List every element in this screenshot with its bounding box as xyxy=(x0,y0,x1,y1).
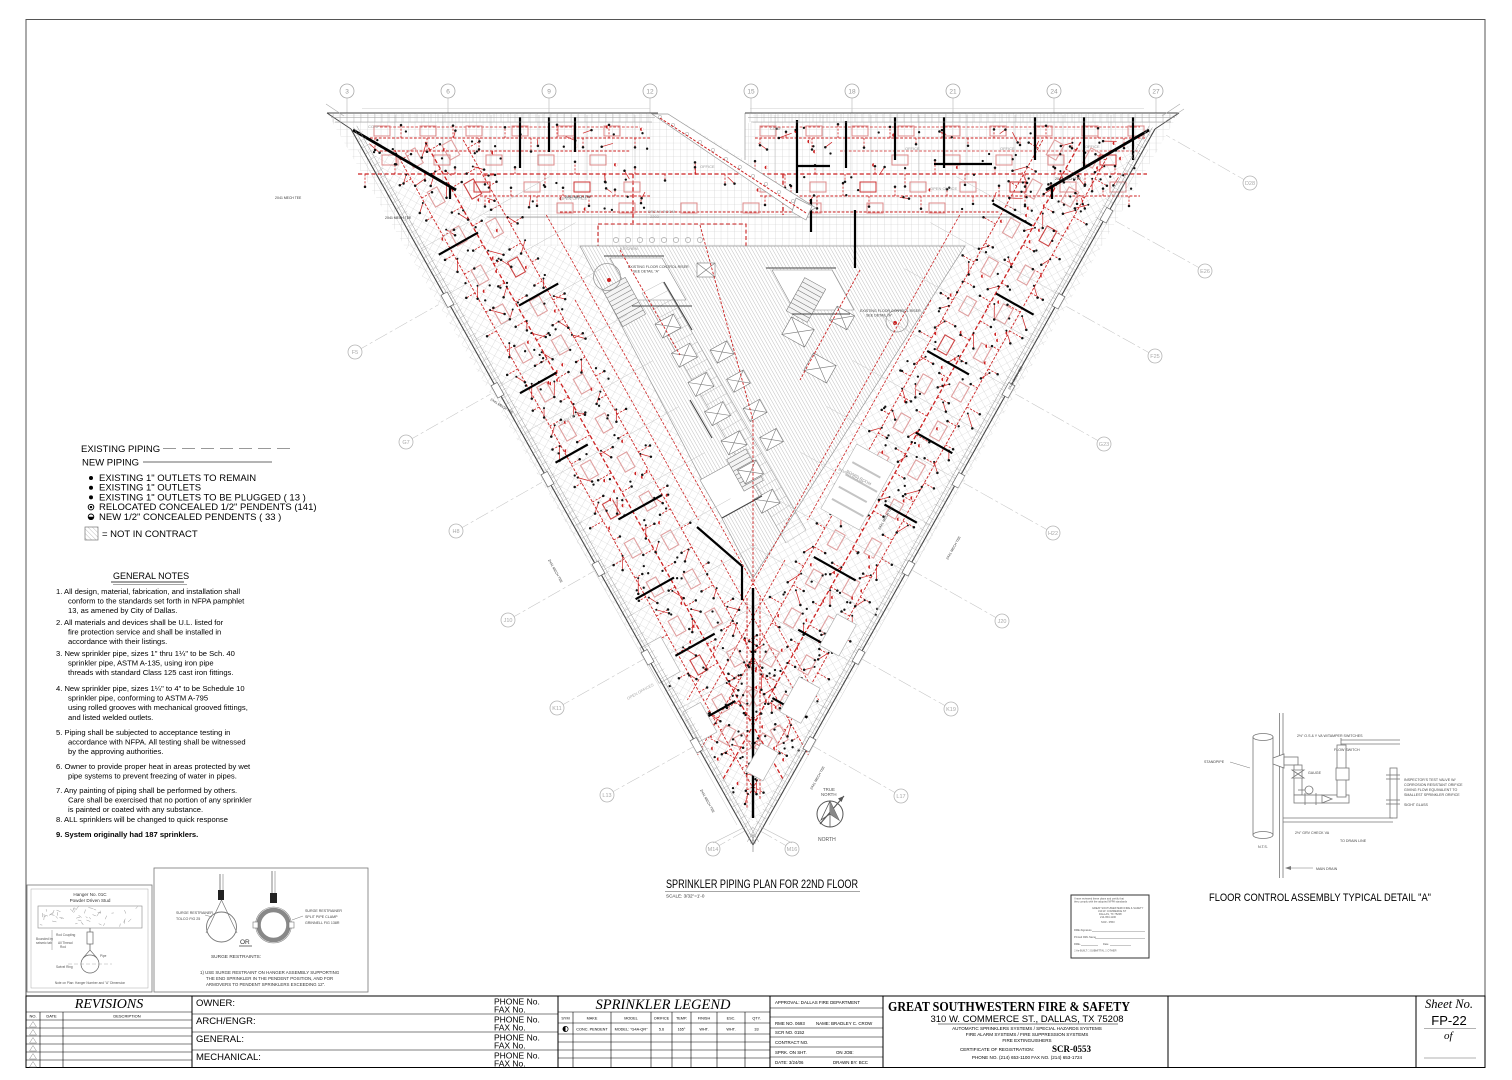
svg-text:SPRINKLER LEGEND: SPRINKLER LEGEND xyxy=(596,997,731,1013)
svg-text:they comply with the adopted N: they comply with the adopted NFPA standa… xyxy=(1074,900,1128,904)
svg-text:310 W. COMMERCE ST., DALLAS, T: 310 W. COMMERCE ST., DALLAS, TX 75208 xyxy=(930,1014,1123,1025)
svg-text:MAIN DRAIN: MAIN DRAIN xyxy=(1316,867,1338,871)
svg-text:Date: Date xyxy=(1103,942,1109,946)
svg-text:1) USE SURGE RESTRAINT ON HANG: 1) USE SURGE RESTRAINT ON HANGER ASSEMBL… xyxy=(200,970,340,975)
svg-text:EXISTING PIPING: EXISTING PIPING xyxy=(81,444,160,455)
svg-text:2. All materials and devices: 2. All materials and devices shall be U.… xyxy=(56,618,224,627)
svg-text:INSPECTOR'S TEST VALVE W/: INSPECTOR'S TEST VALVE W/ xyxy=(1404,778,1455,782)
svg-text:SEE DETAIL "A": SEE DETAIL "A" xyxy=(866,314,893,318)
svg-text:FAX No.: FAX No. xyxy=(494,1005,526,1015)
svg-text:using rolled grooves with mech: using rolled grooves with mechanical gro… xyxy=(68,703,248,712)
svg-text:FLOOR CONTROL ASSEMBLY TYPICAL: FLOOR CONTROL ASSEMBLY TYPICAL DETAIL "A… xyxy=(1209,892,1431,904)
svg-text:SCALE: 3/32"=1'-0: SCALE: 3/32"=1'-0 xyxy=(666,894,705,899)
svg-text:Note on Plan: Hanger Number an: Note on Plan: Hanger Number and "A" Dime… xyxy=(55,981,126,985)
svg-text:Rod Coupling: Rod Coupling xyxy=(56,933,76,937)
svg-text:2203: 2203 xyxy=(650,214,660,219)
svg-text:18: 18 xyxy=(848,88,856,95)
svg-text:ARMOVERS TO PENDENT SPRINKLERS: ARMOVERS TO PENDENT SPRINKLERS EXCEEDING… xyxy=(206,982,325,987)
svg-text:TEMP.: TEMP. xyxy=(676,1017,687,1021)
svg-text:8. ALL sprinklers will be cha: 8. ALL sprinklers will be changed to qui… xyxy=(56,815,228,824)
svg-text:MECHANICAL:: MECHANICAL: xyxy=(196,1052,261,1063)
svg-text:H22: H22 xyxy=(1048,531,1058,537)
svg-text:EXISTING FLOOR CONTROL RISER: EXISTING FLOOR CONTROL RISER xyxy=(628,265,689,269)
svg-text:FAX No.: FAX No. xyxy=(494,1023,526,1033)
svg-text:GAUGE: GAUGE xyxy=(1308,771,1322,775)
svg-text:2½" O.S & Y VA W/TAMPER SWITCH: 2½" O.S & Y VA W/TAMPER SWITCHES xyxy=(1297,734,1363,738)
svg-text:WHT.: WHT. xyxy=(699,1028,708,1032)
svg-text:FIRE ALARM SYSTEMS / FIRE SUPP: FIRE ALARM SYSTEMS / FIRE SUPPRESSION SY… xyxy=(966,1032,1089,1037)
svg-text:OR: OR xyxy=(240,939,250,946)
svg-text:SPRK. ON SHT.: SPRK. ON SHT. xyxy=(775,1050,807,1055)
svg-text:ORIFICE: ORIFICE xyxy=(654,1017,670,1021)
svg-text:SCR-0553: SCR-0553 xyxy=(1052,1044,1092,1054)
svg-text:DATE: 3/24/06: DATE: 3/24/06 xyxy=(775,1060,804,1065)
svg-text:OFFICE: OFFICE xyxy=(905,146,920,151)
svg-text:3. New sprinkler pipe, sizes: 3. New sprinkler pipe, sizes 1" thru 1¼"… xyxy=(56,649,235,658)
svg-text:GREAT SOUTHWESTERN FIRE & SAFE: GREAT SOUTHWESTERN FIRE & SAFETY xyxy=(888,999,1130,1014)
svg-text:SMALLEST SPRINKLER ORIFICE: SMALLEST SPRINKLER ORIFICE xyxy=(1404,793,1460,797)
svg-text:N.T.S.: N.T.S. xyxy=(1258,845,1268,849)
svg-text:NAME: BRADLEY C. CROW: NAME: BRADLEY C. CROW xyxy=(816,1021,873,1026)
svg-text:SPLIT PIPE CLAMP: SPLIT PIPE CLAMP xyxy=(305,915,338,919)
svg-text:K19: K19 xyxy=(946,707,956,713)
svg-text:H8: H8 xyxy=(452,529,459,535)
svg-text:G7: G7 xyxy=(402,440,409,446)
svg-text:FLOW SWITCH: FLOW SWITCH xyxy=(1334,748,1360,752)
svg-text:pipe systems to prevent freezi: pipe systems to prevent freezing of wate… xyxy=(68,772,237,781)
svg-text:accordance with NFPA. All tes: accordance with NFPA. All testing shall … xyxy=(68,738,246,747)
svg-text:J20: J20 xyxy=(998,619,1007,625)
svg-text:MAKE: MAKE xyxy=(587,1017,598,1021)
svg-text:GRINNELL FIG 138R: GRINNELL FIG 138R xyxy=(305,921,340,925)
svg-text:OFFICE: OFFICE xyxy=(1085,144,1100,149)
svg-text:DRAWN BY: BCC: DRAWN BY: BCC xyxy=(833,1060,868,1065)
svg-text:APPROVAL: DALLAS FIRE DEPARTME: APPROVAL: DALLAS FIRE DEPARTMENT xyxy=(775,1000,860,1005)
svg-text:ON JOB:: ON JOB: xyxy=(836,1050,854,1055)
svg-text:Sheet No.: Sheet No. xyxy=(1425,997,1473,1011)
svg-text:ESC.: ESC. xyxy=(727,1017,736,1021)
svg-text:M14: M14 xyxy=(708,847,719,853)
svg-text:Care shall be exercised that n: Care shall be exercised that no portion … xyxy=(68,796,252,805)
svg-text:L17: L17 xyxy=(896,794,905,800)
svg-text:GENERAL NOTES: GENERAL NOTES xyxy=(113,571,189,581)
svg-text:L13: L13 xyxy=(602,793,611,799)
svg-text:SYM: SYM xyxy=(561,1017,569,1021)
svg-text:STANDPIPE: STANDPIPE xyxy=(1204,760,1225,764)
svg-text:QTY.: QTY. xyxy=(752,1017,760,1021)
svg-text:2X41 MECH TEE: 2X41 MECH TEE xyxy=(275,196,302,200)
svg-text:is painted or coated with any: is painted or coated with any substance. xyxy=(68,805,203,814)
svg-text:Rod: Rod xyxy=(60,945,66,949)
svg-text:fire protection service and sh: fire protection service and shall be ins… xyxy=(68,628,221,637)
svg-text:2½" GRV CHECK VA: 2½" GRV CHECK VA xyxy=(1295,831,1330,835)
svg-text:2X41 MECH TEE: 2X41 MECH TEE xyxy=(1055,177,1082,181)
svg-text:Powder Driven Stud: Powder Driven Stud xyxy=(70,898,111,903)
svg-text:21: 21 xyxy=(949,88,957,95)
svg-text:CERTIFICATE OF REGISTRATION:: CERTIFICATE OF REGISTRATION: xyxy=(960,1047,1034,1052)
svg-text:TO DRAIN LINE: TO DRAIN LINE xyxy=(1340,839,1367,843)
svg-text:THE END SPRINKLER IN THE PENDE: THE END SPRINKLER IN THE PENDENT POSITIO… xyxy=(206,976,333,981)
svg-text:sprinkler pipe, conforming to: sprinkler pipe, conforming to ASTM A-795 xyxy=(68,694,208,703)
svg-text:27: 27 xyxy=(1152,88,1160,95)
svg-text:F5: F5 xyxy=(352,350,358,356)
svg-text:by the approving authorities.: by the approving authorities. xyxy=(68,747,163,756)
svg-text:1. All design, material, fabr: 1. All design, material, fabrication, an… xyxy=(56,587,240,596)
svg-text:FP-22: FP-22 xyxy=(1431,1013,1466,1028)
svg-text:K11: K11 xyxy=(552,706,561,712)
svg-text:SIGHT GLASS: SIGHT GLASS xyxy=(1404,803,1429,807)
svg-text:13, as amened by City of Dalla: 13, as amened by City of Dallas. xyxy=(68,606,177,615)
svg-text:threads with standard Class 12: threads with standard Class 125 cast iro… xyxy=(68,668,233,677)
svg-text:3: 3 xyxy=(345,88,349,95)
svg-text:15: 15 xyxy=(747,88,755,95)
svg-text:9: 9 xyxy=(547,88,551,95)
svg-text:PHONE NO. (214) 653-1100 FA: PHONE NO. (214) 653-1100 FAX NO. (214) 6… xyxy=(972,1055,1083,1060)
svg-text:7. Any painting of piping sha: 7. Any painting of piping shall be perfo… xyxy=(56,786,237,795)
svg-text:GENERAL:: GENERAL: xyxy=(196,1034,244,1045)
svg-text:Hanger No. 01C: Hanger No. 01C xyxy=(73,892,107,897)
svg-text:REVISIONS: REVISIONS xyxy=(74,997,143,1012)
svg-text:SURGE RESTRAINER: SURGE RESTRAINER xyxy=(305,909,342,913)
svg-text:5.6: 5.6 xyxy=(659,1028,664,1032)
svg-text:NORTH: NORTH xyxy=(818,837,836,843)
svg-text:CORROSION RESISTANT ORIFICE: CORROSION RESISTANT ORIFICE xyxy=(1404,783,1463,787)
svg-text:4. New sprinkler pipe, sizes: 4. New sprinkler pipe, sizes 1¼" to 4" t… xyxy=(56,684,245,693)
svg-text:SCR - 0553: SCR - 0553 xyxy=(1101,920,1115,924)
svg-text:conform to the standards set f: conform to the standards set forth in NF… xyxy=(68,597,245,606)
svg-text:sprinkler pipe, ASTM A-135, us: sprinkler pipe, ASTM A-135, using iron p… xyxy=(68,659,214,668)
svg-text:= NOT IN CONTRACT: = NOT IN CONTRACT xyxy=(102,529,198,540)
svg-text:OPEN OFFICE: OPEN OFFICE xyxy=(930,186,957,191)
svg-text:Pipe: Pipe xyxy=(100,954,107,958)
svg-text:CONC. PENDENT: CONC. PENDENT xyxy=(576,1028,608,1032)
svg-text:GIVING FLOW EQUIVALENT TO: GIVING FLOW EQUIVALENT TO xyxy=(1404,788,1457,792)
svg-text:33: 33 xyxy=(754,1028,758,1032)
svg-text:CONF: CONF xyxy=(368,124,380,129)
svg-text:AUTOMATIC SPRINKLERS SYSTEMS /: AUTOMATIC SPRINKLERS SYSTEMS / SPECIAL H… xyxy=(952,1026,1102,1031)
svg-text:SPRINKLER PIPING PLAN FOR 22ND: SPRINKLER PIPING PLAN FOR 22ND FLOOR xyxy=(666,879,858,891)
svg-text:ARCH/ENGR:: ARCH/ENGR: xyxy=(196,1016,256,1027)
svg-text:MODEL: "G4A-QR": MODEL: "G4A-QR" xyxy=(615,1028,649,1032)
svg-text:RME NO. 0693: RME NO. 0693 xyxy=(775,1021,805,1026)
svg-text:CONF: CONF xyxy=(770,126,782,131)
svg-text:□ As-BUILT □ SUBMITTAL □: □ As-BUILT □ SUBMITTAL □ OTHER xyxy=(1074,949,1117,953)
svg-text:12: 12 xyxy=(646,88,654,95)
svg-text:NEW PIPING: NEW PIPING xyxy=(82,458,139,469)
svg-text:SEE DETAIL "A": SEE DETAIL "A" xyxy=(633,270,660,274)
svg-text:F25: F25 xyxy=(1150,354,1159,360)
svg-text:D28: D28 xyxy=(1245,181,1255,187)
svg-text:seismic tab: seismic tab xyxy=(36,941,52,945)
svg-text:OFFICE: OFFICE xyxy=(700,164,715,169)
svg-text:2X41 MECH TEE: 2X41 MECH TEE xyxy=(385,216,412,220)
svg-text:KITCHEN: KITCHEN xyxy=(620,246,638,251)
svg-text:FINISH: FINISH xyxy=(698,1017,711,1021)
svg-text:214-653-1100: 214-653-1100 xyxy=(1100,915,1117,919)
svg-text:NORTH: NORTH xyxy=(821,792,837,797)
svg-text:FAX No.: FAX No. xyxy=(494,1059,526,1069)
svg-text:SCR NO. 0152: SCR NO. 0152 xyxy=(775,1030,805,1035)
svg-text:M16: M16 xyxy=(787,847,798,853)
svg-text:24: 24 xyxy=(1050,88,1058,95)
svg-text:NO.: NO. xyxy=(29,1014,36,1019)
svg-text:FIRE EXTINGUISHERS: FIRE EXTINGUISHERS xyxy=(1002,1038,1051,1043)
svg-text:165°: 165° xyxy=(678,1028,686,1032)
svg-text:EXISTING FLOOR CONTROL RISER: EXISTING FLOOR CONTROL RISER xyxy=(860,309,921,313)
svg-text:RME-Signature: RME-Signature xyxy=(1074,928,1092,932)
svg-text:NEW 1/2" CONCEALED PENDENTS: NEW 1/2" CONCEALED PENDENTS ( 33 ) xyxy=(99,512,281,523)
svg-text:FAX No.: FAX No. xyxy=(494,1041,526,1051)
svg-text:2X41 MECH TEE: 2X41 MECH TEE xyxy=(565,195,592,199)
svg-text:OWNER:: OWNER: xyxy=(196,998,235,1009)
svg-text:OFFICE: OFFICE xyxy=(1000,146,1015,151)
svg-text:G23: G23 xyxy=(1099,442,1109,448)
svg-text:9. System originally had 187 s: 9. System originally had 187 sprinklers. xyxy=(56,830,198,839)
svg-text:WHT.: WHT. xyxy=(726,1028,735,1032)
svg-text:DESCRIPTION: DESCRIPTION xyxy=(113,1014,140,1019)
svg-text:6: 6 xyxy=(446,88,450,95)
svg-text:J10: J10 xyxy=(504,618,513,624)
svg-text:and listed welded outlets.: and listed welded outlets. xyxy=(68,713,153,722)
svg-text:MODEL: MODEL xyxy=(624,1017,638,1021)
svg-text:Swivel Ring: Swivel Ring xyxy=(56,965,73,969)
svg-text:Printed RML Name: Printed RML Name xyxy=(1074,935,1097,939)
svg-text:SURGE RESTRAINER: SURGE RESTRAINER xyxy=(176,911,213,915)
svg-text:E26: E26 xyxy=(1200,269,1210,275)
svg-text:TOLCO FIG 25: TOLCO FIG 25 xyxy=(176,917,200,921)
svg-text:6. Owner to provide proper he: 6. Owner to provide proper heat in areas… xyxy=(56,762,251,771)
svg-text:DATE: DATE xyxy=(46,1014,57,1019)
svg-text:accordance with their listings: accordance with their listings. xyxy=(68,637,167,646)
svg-text:SURGE RESTRAINTS:: SURGE RESTRAINTS: xyxy=(211,954,261,960)
svg-text:CONTRACT NO.: CONTRACT NO. xyxy=(775,1040,808,1045)
svg-text:RME-: RME- xyxy=(1074,942,1081,946)
svg-text:5. Piping shall be subjected: 5. Piping shall be subjected to acceptan… xyxy=(56,728,230,737)
